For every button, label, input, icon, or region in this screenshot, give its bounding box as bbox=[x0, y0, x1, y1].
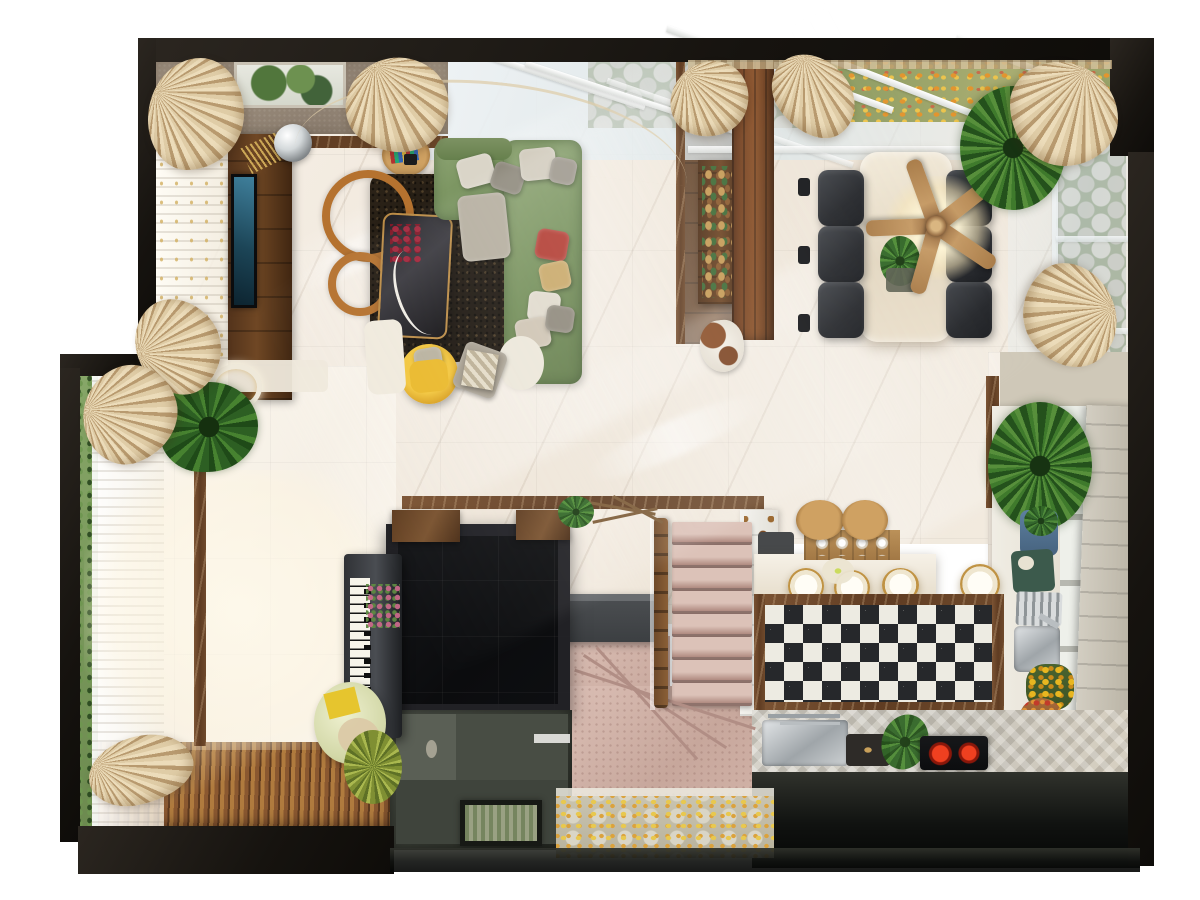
wall-right-upper bbox=[1110, 38, 1154, 156]
botanical-artwork bbox=[234, 62, 346, 108]
checker-frame-left bbox=[754, 594, 765, 713]
bottom-shadow-band bbox=[390, 848, 1140, 872]
entry-step-panel bbox=[456, 714, 568, 780]
wall-top bbox=[138, 38, 1154, 62]
stair-tread bbox=[672, 683, 752, 706]
stair-tread bbox=[672, 637, 752, 660]
sink-rail bbox=[768, 714, 840, 718]
bottom-sink bbox=[762, 720, 848, 766]
checkerboard-floor bbox=[765, 605, 992, 702]
hanging-board bbox=[796, 500, 844, 540]
wall-left-lower bbox=[60, 368, 80, 842]
succulent bbox=[1024, 506, 1058, 536]
checker-frame-top bbox=[754, 594, 1004, 605]
stair-tread bbox=[672, 614, 752, 637]
entry-light-slot bbox=[534, 734, 570, 743]
hanging-board bbox=[842, 500, 888, 540]
marble-border-left bbox=[194, 438, 206, 746]
sink-rail bbox=[780, 722, 840, 725]
wall-right bbox=[1128, 152, 1154, 866]
fruit-plate bbox=[822, 558, 854, 584]
induction-cooktop bbox=[920, 736, 988, 770]
stair-tread bbox=[672, 591, 752, 614]
wall-bottom-left bbox=[78, 826, 394, 874]
stair-tread bbox=[672, 568, 752, 591]
spiky-grass-plant bbox=[344, 730, 402, 804]
entry-glow-dot bbox=[426, 740, 437, 758]
camera-decor bbox=[404, 154, 417, 165]
apartment-floor-plan-render bbox=[0, 0, 1200, 900]
doormat bbox=[460, 800, 542, 846]
checker-frame-right bbox=[992, 594, 1004, 713]
garlic-bulb bbox=[1018, 556, 1034, 570]
tv-screen bbox=[231, 174, 257, 308]
stair-tread bbox=[672, 660, 752, 683]
green-tray bbox=[1011, 549, 1056, 594]
